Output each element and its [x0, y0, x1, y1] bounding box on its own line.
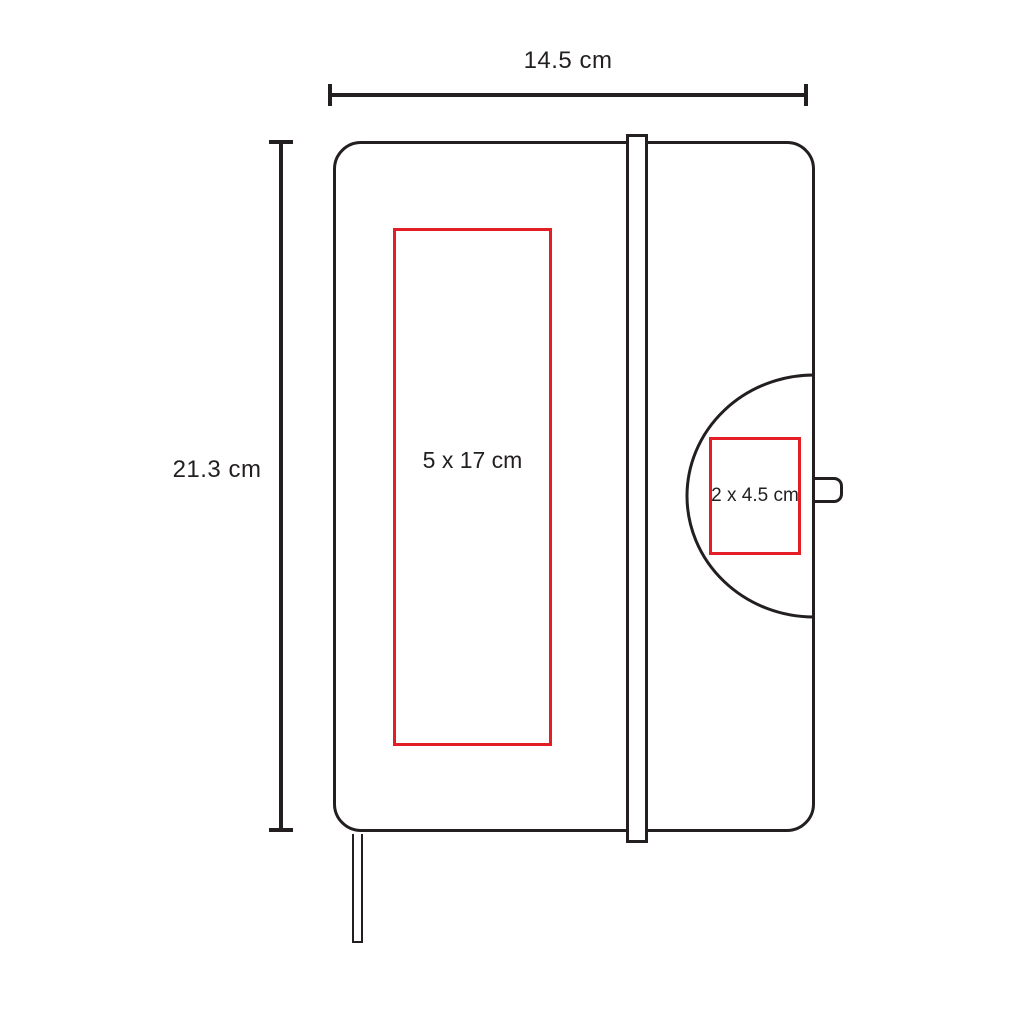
- height-dimension-cap-bottom: [269, 828, 293, 832]
- width-dimension-cap-left: [328, 84, 332, 106]
- height-dimension-cap-top: [269, 140, 293, 144]
- width-dimension-line: [330, 93, 806, 97]
- front-print-area-label: 5 x 17 cm: [396, 446, 549, 474]
- width-dimension-cap-right: [804, 84, 808, 106]
- height-dimension-label: 21.3 cm: [142, 456, 292, 484]
- pen-clip-tab: [813, 477, 843, 503]
- product-dimension-diagram: 14.5 cm 21.3 cm 5 x 17 cm 2 x 4.5 cm: [0, 0, 1024, 1024]
- width-dimension-label: 14.5 cm: [330, 47, 806, 75]
- flap-print-area-label: 2 x 4.5 cm: [711, 485, 799, 507]
- elastic-band: [626, 134, 648, 843]
- front-print-area: 5 x 17 cm: [393, 228, 552, 746]
- flap-print-area: 2 x 4.5 cm: [709, 437, 801, 555]
- bookmark-ribbon: [352, 834, 363, 943]
- height-dimension-line: [279, 142, 283, 830]
